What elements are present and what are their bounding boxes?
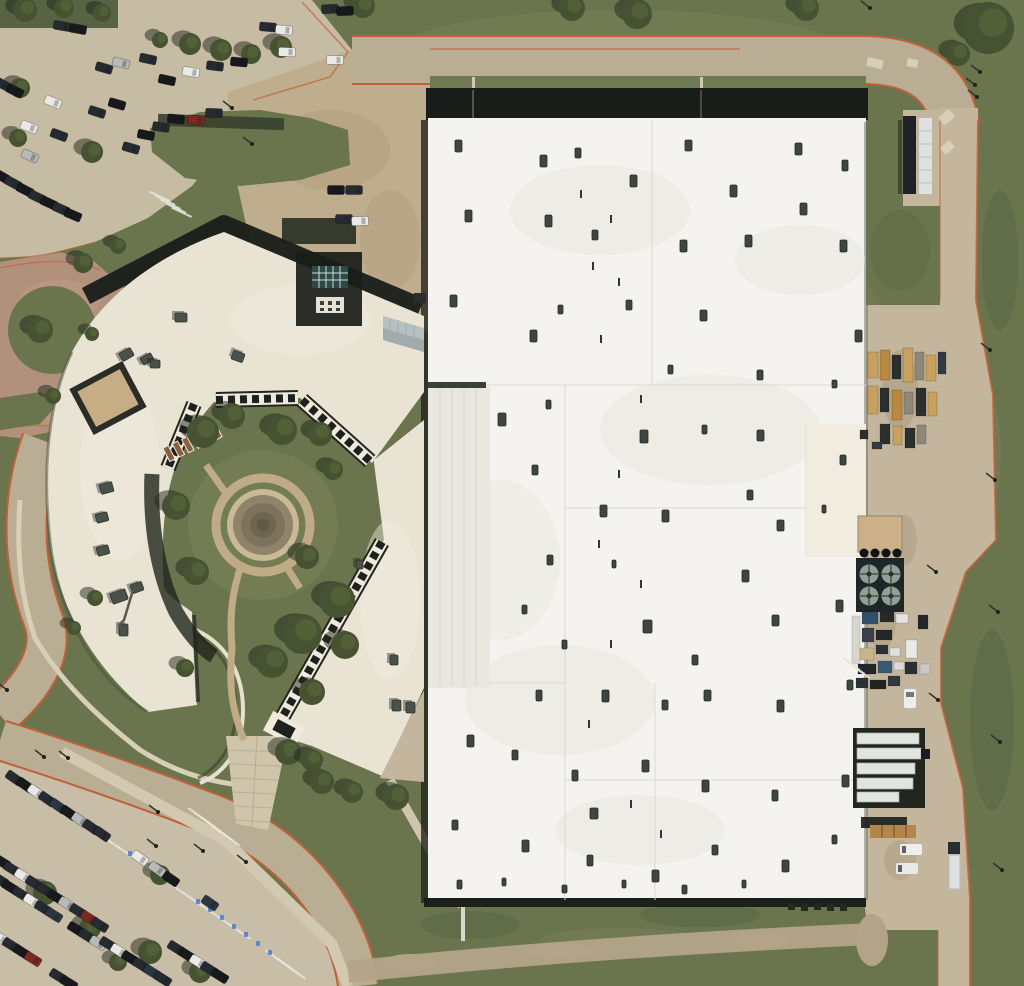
- tree-highlight: [303, 548, 316, 561]
- roof-shade2: [600, 375, 820, 485]
- dock-truck-cab: [921, 749, 930, 759]
- car-glass: [356, 187, 360, 193]
- hvac-body: [175, 313, 187, 322]
- pole-base: [1000, 868, 1004, 872]
- pole-base: [230, 106, 234, 110]
- car-glass: [177, 116, 182, 123]
- roof-vent: [562, 885, 567, 893]
- car-body: [336, 215, 353, 224]
- roof-vent: [800, 203, 807, 215]
- equipment-dot: [788, 903, 795, 910]
- roof-vent: [702, 780, 709, 792]
- tree-highlight: [146, 943, 159, 956]
- tree-highlight: [348, 784, 360, 796]
- car-glass: [346, 216, 350, 222]
- cooling-towers: [856, 549, 904, 613]
- dirt-blob2: [526, 943, 594, 959]
- yard-equipment-item: [862, 628, 874, 642]
- entrance-shadow: [296, 252, 362, 326]
- tree-highlight: [50, 390, 59, 399]
- tree-highlight: [295, 619, 317, 641]
- roof-vent: [522, 840, 529, 852]
- cooling-fan: [860, 587, 879, 606]
- yard-equipment-item: [880, 612, 894, 622]
- roof-strip-shadow: [428, 382, 486, 388]
- road-truck-trailer: [949, 855, 960, 889]
- roof-vent: [832, 380, 837, 388]
- roof-vent: [742, 570, 749, 582]
- car-glass: [197, 117, 201, 124]
- cooling-tank: [860, 549, 869, 558]
- roof-vent: [562, 640, 567, 649]
- roof-vent: [757, 370, 763, 380]
- tree-highlight: [331, 587, 351, 607]
- yard-equipment-item: [890, 648, 900, 656]
- cooling-housing: [856, 558, 904, 612]
- fan-hub: [867, 594, 872, 599]
- roof-vent: [730, 185, 737, 197]
- tree-highlight: [186, 36, 198, 48]
- roof-strip-low: [428, 386, 490, 688]
- car: [152, 121, 170, 132]
- tree-highlight: [330, 463, 341, 474]
- cooling-fan: [882, 587, 901, 606]
- pallet-stack: [904, 392, 913, 414]
- roof-vent: [840, 455, 846, 465]
- roof-vent: [572, 770, 578, 781]
- small-dark-roof: [414, 293, 426, 303]
- yard-equipment-item: [888, 676, 900, 686]
- pole-base: [5, 688, 9, 692]
- car-glass: [269, 24, 274, 31]
- car-body: [275, 25, 293, 35]
- car: [336, 6, 353, 16]
- greenhouse-a-body: [312, 266, 348, 288]
- roof-thin-vent: [610, 215, 612, 223]
- roof-vent: [642, 760, 649, 772]
- roof-vent: [842, 160, 848, 171]
- roof-shade3: [465, 645, 655, 755]
- accessible-mark: [256, 941, 260, 946]
- trailer-dark: [903, 116, 916, 194]
- roof-vent: [455, 140, 462, 152]
- roof-vent: [700, 310, 707, 321]
- car: [328, 186, 345, 195]
- roof-vent: [467, 735, 474, 747]
- equipment-dot: [840, 904, 847, 911]
- tan-outbuilding: [858, 516, 902, 552]
- drive-stain2: [360, 190, 420, 290]
- car-body: [278, 47, 295, 57]
- roof-vent: [530, 330, 537, 342]
- dirt-blob4: [856, 914, 888, 966]
- pole-base: [154, 844, 158, 848]
- tree-highlight: [171, 496, 186, 511]
- roof-vent: [450, 295, 457, 307]
- roof-vent: [575, 148, 581, 158]
- roof-vent: [545, 215, 552, 227]
- car-body: [205, 108, 222, 118]
- car-body: [259, 22, 277, 32]
- roof-vent: [772, 790, 778, 801]
- tree-highlight: [72, 623, 80, 631]
- hvac-body: [390, 655, 398, 665]
- tree-highlight: [157, 34, 166, 43]
- hvac-body: [150, 360, 160, 368]
- pole-base: [988, 348, 992, 352]
- roof-vent: [745, 235, 752, 247]
- roof-thin-vent: [598, 540, 600, 548]
- tree-highlight: [61, 1, 72, 12]
- trailer-shadow1: [898, 120, 902, 194]
- grass-strip-north: [430, 76, 866, 89]
- road-truck: [948, 842, 960, 889]
- car-glass: [240, 59, 245, 66]
- greenhouse-a: [312, 266, 348, 288]
- tree-highlight: [182, 661, 192, 671]
- fan-hub: [867, 572, 872, 577]
- pallet-stack: [868, 386, 878, 414]
- van-body: [904, 689, 916, 708]
- roof-vent: [822, 505, 826, 513]
- roof-vent: [498, 413, 506, 426]
- car-body: [328, 186, 345, 195]
- roof-vent: [757, 430, 764, 441]
- dirt-blob1: [384, 954, 436, 972]
- pole-base: [244, 860, 248, 864]
- roof-vent: [522, 605, 527, 614]
- tree-highlight: [307, 682, 321, 696]
- roof-vent: [742, 880, 746, 888]
- roof-thin-vent: [580, 190, 582, 198]
- car-body: [336, 6, 353, 16]
- roof-vent: [590, 808, 598, 819]
- car-glass: [346, 8, 350, 15]
- roof-vent: [782, 860, 789, 872]
- dock-trailer: [857, 733, 919, 744]
- pole-base: [975, 95, 979, 99]
- car-body: [206, 60, 224, 71]
- roof-vent: [836, 600, 843, 612]
- fan-hub: [889, 572, 894, 577]
- roof-shade1: [510, 165, 690, 255]
- factory-north-shadow: [426, 88, 868, 120]
- white-van: [904, 689, 916, 708]
- car-glass: [337, 57, 341, 63]
- car: [167, 114, 185, 125]
- yard-equipment-item: [876, 630, 892, 640]
- pallet-stack: [893, 426, 902, 445]
- hvac-unit: [116, 622, 128, 636]
- roof-thin-vent: [592, 262, 594, 270]
- tree-highlight: [318, 773, 331, 786]
- tree-highlight: [979, 8, 1008, 37]
- car: [278, 47, 295, 57]
- roof-vent: [777, 700, 784, 712]
- roof-vent: [777, 520, 784, 531]
- pallet-stack: [928, 392, 937, 416]
- yard-equipment-item: [870, 680, 886, 689]
- car-body: [346, 186, 363, 195]
- van-windshield: [906, 692, 914, 697]
- roof-vent: [643, 620, 652, 633]
- pallet-stack: [872, 442, 882, 449]
- tree-highlight: [277, 419, 294, 436]
- fountain-center: [257, 519, 269, 531]
- tree-highlight: [248, 47, 259, 58]
- roof-thin-vent: [630, 800, 632, 808]
- roof-vent: [847, 680, 853, 690]
- accessible-mark: [232, 924, 236, 929]
- roof-vent: [795, 143, 802, 155]
- tree-highlight: [308, 752, 320, 764]
- tree-highlight: [90, 329, 98, 337]
- car: [230, 57, 248, 67]
- roof-vent: [682, 885, 687, 894]
- lumber-pile: [870, 825, 916, 838]
- roof-vent: [652, 870, 659, 882]
- hvac-body: [392, 700, 401, 711]
- pallet-stack: [868, 352, 878, 378]
- roof-vent: [662, 510, 669, 522]
- tree-highlight: [92, 592, 101, 601]
- roof-vent: [558, 305, 563, 314]
- car-glass: [331, 6, 335, 13]
- car-body: [167, 114, 185, 125]
- yard-equipment-item: [906, 640, 917, 658]
- grass-patch-right2: [970, 630, 1014, 810]
- yard-equipment-item: [860, 648, 874, 660]
- hvac-body: [119, 624, 128, 636]
- cooling-tank: [882, 549, 891, 558]
- pole-base: [993, 478, 997, 482]
- pallet-stack: [926, 355, 936, 381]
- dock-trailer: [857, 778, 913, 789]
- cooling-fan: [860, 565, 879, 584]
- tree-highlight: [80, 256, 91, 267]
- car-glass: [216, 63, 221, 70]
- equipment-dot: [814, 903, 821, 910]
- pole-base: [66, 756, 70, 760]
- yard-equipment-item: [856, 678, 868, 688]
- accessible-mark: [196, 899, 200, 904]
- pallet-stack: [938, 352, 946, 374]
- car: [275, 25, 293, 35]
- road-mark: [472, 77, 475, 88]
- roof-vent: [465, 210, 472, 222]
- car: [351, 216, 368, 226]
- pallet-stack: [916, 388, 926, 416]
- car: [321, 4, 338, 14]
- pole-base: [998, 740, 1002, 744]
- tree-highlight: [88, 144, 100, 156]
- roof-thin-vent: [618, 278, 620, 286]
- aerial-scene-svg: Aerial satellite view of an industrial c…: [0, 0, 1024, 986]
- yard-equipment-item: [896, 614, 908, 623]
- pallet-stack: [905, 428, 915, 448]
- car-body: [321, 4, 338, 14]
- car: [327, 56, 344, 65]
- yard-equipment-item: [862, 612, 878, 624]
- roof-vent: [540, 155, 547, 167]
- roof-vent: [702, 425, 707, 434]
- roof-vent: [747, 490, 753, 500]
- accessible-mark: [244, 932, 248, 937]
- cooling-tank: [871, 549, 880, 558]
- yard-equipment-item: [852, 616, 860, 664]
- roof-vent: [546, 400, 551, 409]
- roof-vent: [452, 820, 458, 830]
- roof-vent: [622, 880, 626, 888]
- cooling-fan: [882, 565, 901, 584]
- car: [205, 108, 222, 118]
- tree-highlight: [15, 131, 25, 141]
- hvac-body: [356, 560, 363, 569]
- yard-equipment-item: [878, 661, 892, 673]
- accessible-mark: [220, 915, 224, 920]
- road-mark: [700, 77, 703, 88]
- tree-highlight: [197, 420, 215, 438]
- roof-vent: [602, 690, 609, 702]
- roof-thin-vent: [618, 470, 620, 478]
- dirt-blob3: [730, 933, 790, 949]
- white-car-1-glass: [902, 846, 906, 853]
- roof-vent: [640, 430, 648, 443]
- roof-vent: [587, 855, 593, 866]
- roof-thin-vent: [588, 720, 590, 728]
- pallet-stack: [880, 350, 890, 380]
- roof-vent: [502, 878, 506, 886]
- roof-vent: [855, 330, 862, 342]
- pole-base: [42, 755, 46, 759]
- tree-highlight: [632, 3, 649, 20]
- dock-trailer: [857, 748, 921, 759]
- tree-highlight: [35, 320, 49, 334]
- grass-patch-bottom1: [420, 911, 520, 939]
- pole-base: [996, 610, 1000, 614]
- roof-vent: [457, 880, 462, 889]
- pallet-stack: [917, 425, 926, 444]
- roof-vent: [704, 690, 711, 701]
- roof-vent: [612, 560, 616, 568]
- fan-hub: [889, 594, 894, 599]
- car-glass: [285, 27, 290, 34]
- yard-equipment-item: [876, 645, 888, 654]
- roof-vent: [668, 365, 673, 374]
- roof-vent: [600, 505, 607, 517]
- car: [259, 22, 277, 32]
- car-glass: [215, 110, 219, 117]
- roof-vent: [692, 655, 698, 665]
- greenhouse-b: [316, 297, 344, 313]
- car-body: [230, 57, 248, 67]
- tree-highlight: [99, 6, 109, 16]
- grass-patch-ne: [870, 210, 930, 290]
- pole-base: [156, 810, 160, 814]
- roof-vent: [832, 835, 837, 844]
- roof-vent: [662, 700, 668, 710]
- cooling-tank: [893, 549, 902, 558]
- roof-thin-vent: [610, 640, 612, 648]
- tree-highlight: [217, 42, 229, 54]
- car: [346, 186, 363, 195]
- roof-vent: [547, 555, 553, 565]
- pallet-stack: [860, 430, 868, 439]
- roof-vent: [685, 140, 692, 151]
- road-truck-cab: [948, 842, 960, 854]
- car-body: [187, 115, 205, 125]
- tree-highlight: [115, 240, 124, 249]
- tree-highlight: [954, 45, 967, 58]
- tree-highlight: [316, 425, 329, 438]
- pole-base: [201, 849, 205, 853]
- hvac-body: [406, 702, 415, 713]
- aerial-photo: Aerial satellite view of an industrial c…: [0, 0, 1024, 986]
- roof-thin-vent: [640, 580, 642, 588]
- tree-highlight: [227, 406, 241, 420]
- pallet-stack: [903, 348, 913, 382]
- pole-base: [978, 70, 982, 74]
- pallet-stack: [892, 390, 902, 420]
- car-glass: [338, 187, 342, 193]
- car-glass: [361, 218, 365, 225]
- car-body: [351, 216, 368, 226]
- roof-shade4: [735, 225, 865, 295]
- white-post: [461, 907, 465, 941]
- car-body: [327, 56, 344, 65]
- pole-base: [973, 83, 977, 87]
- yard-equipment-item: [905, 662, 917, 674]
- roof-vent: [512, 750, 518, 760]
- roof-vent: [680, 240, 687, 252]
- tree-highlight: [391, 787, 405, 801]
- roof-vent: [536, 690, 542, 701]
- car-body: [152, 121, 170, 132]
- car: [206, 60, 224, 71]
- roof-vent: [842, 775, 849, 787]
- dock-trailer: [857, 763, 915, 774]
- tree-highlight: [21, 1, 34, 14]
- tree-highlight: [191, 562, 205, 576]
- pole-base: [868, 6, 872, 10]
- pole-base: [936, 698, 940, 702]
- car: [187, 115, 205, 125]
- roof-vent: [592, 230, 598, 240]
- pallet-stack: [880, 424, 890, 444]
- roof-vent: [772, 615, 779, 626]
- pole-base: [250, 142, 254, 146]
- pole-base: [934, 570, 938, 574]
- factory-building: [421, 88, 868, 907]
- pallet-stack: [880, 388, 889, 412]
- car-glass: [288, 49, 292, 56]
- equipment-dot: [801, 904, 808, 911]
- tree-highlight: [340, 635, 355, 650]
- roof-thin-vent: [600, 335, 602, 343]
- roof-shade5: [555, 795, 725, 865]
- roof-vent: [532, 465, 538, 475]
- factory-south-edge: [424, 898, 866, 907]
- tree-highlight: [266, 650, 284, 668]
- roof-thin-vent: [640, 395, 642, 403]
- yard-equipment-item: [920, 664, 930, 674]
- roof-vent: [626, 300, 632, 310]
- roof-vent: [712, 845, 718, 855]
- grass-patch-right1: [982, 190, 1018, 330]
- pallet-stack: [915, 352, 924, 380]
- equipment-dot: [827, 904, 834, 911]
- yard-equipment-item: [918, 615, 928, 629]
